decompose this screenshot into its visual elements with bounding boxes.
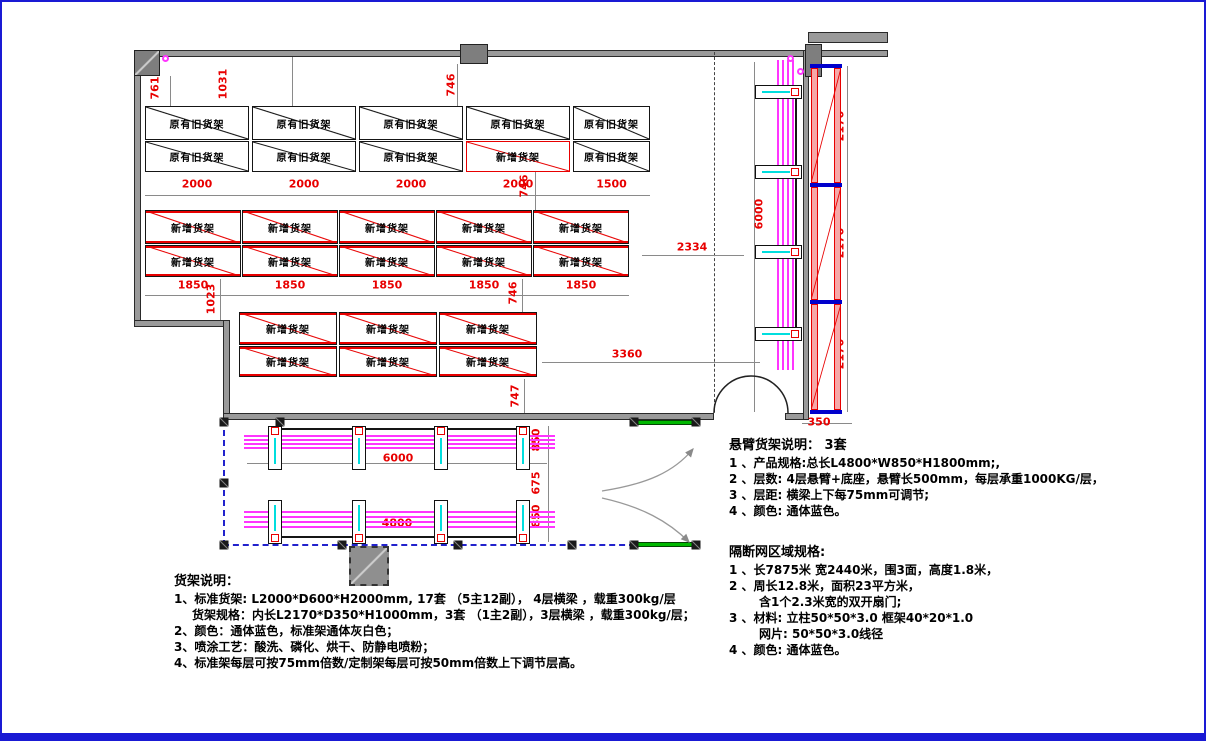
wall-step (134, 320, 230, 327)
dim-line (642, 255, 744, 256)
dim-rack-bay: 1850 (566, 279, 597, 292)
floor-plan-page: 761 1031 746 746 1023 746 747 2334 3360 … (0, 0, 1206, 741)
rack-brace (811, 68, 841, 183)
marker-circle (797, 68, 804, 75)
rack-cell-old: 原有旧货架 (466, 106, 570, 140)
rack-cell-new: 新增货架 (339, 245, 435, 277)
note-line: 2、颜色：通体蓝色，标准架通体灰白色； (174, 623, 695, 639)
fence-post (454, 541, 463, 550)
rack-cell-new: 新增货架 (339, 312, 437, 345)
cantilever-arm-line (244, 443, 555, 445)
rack-cell-old: 原有旧货架 (359, 141, 463, 172)
cantilever-arm-line (787, 60, 789, 370)
cantilever-arm-line (244, 447, 555, 449)
title-bar-bottom (2, 733, 1206, 741)
rack-cell-new: 新增货架 (145, 245, 241, 277)
note-line: 货架规格：内长L2170*D350*H1000mm，3套 （1主2副），3层横梁… (174, 607, 695, 623)
dim-line (524, 379, 525, 413)
dim-rack-bay: 1500 (596, 178, 627, 191)
rack-cell-old: 原有旧货架 (573, 106, 650, 140)
notes-rack-title: 货架说明： (174, 574, 695, 590)
fence-post (630, 541, 639, 550)
dim-rack-bay: 2000 (289, 178, 320, 191)
fence-post (220, 541, 229, 550)
dim-line (754, 62, 755, 412)
notes-cantilever-spec: 悬臂货架说明： 3套 1 、产品规格:总长L4800*W850*H1800mm;… (729, 438, 1104, 519)
note-line: 2 、周长12.8米，面积23平方米， (729, 578, 998, 594)
wall-top-right (808, 32, 888, 43)
note-line: 2 、层数: 4层悬臂+底座，悬臂长500mm，每层承重1000KG/层， (729, 471, 1104, 487)
dim-746-group2: 746 (507, 282, 520, 305)
dim-line (292, 57, 293, 106)
wall-right (803, 50, 809, 420)
notes-cantilever-title: 悬臂货架说明： 3套 (729, 438, 1104, 454)
dim-rack-bay: 2000 (503, 178, 534, 191)
rack-cell-new: 新增货架 (533, 210, 629, 244)
cantilever-column (437, 534, 445, 542)
cantilever-column (355, 534, 363, 542)
note-line: 1 、产品规格:总长L4800*W850*H1800mm;, (729, 455, 1104, 471)
fence-post (276, 418, 285, 427)
cantilever-column (271, 427, 279, 435)
cantilever-column (519, 534, 527, 542)
swing-arrow-down (602, 498, 689, 542)
fence-post (338, 541, 347, 550)
rack-cell-old: 原有旧货架 (359, 106, 463, 140)
fence-post (692, 418, 701, 427)
cantilever-column (791, 248, 799, 256)
dim-1031: 1031 (217, 69, 230, 100)
note-line: 含1个2.3米宽的双开扇门; (729, 594, 998, 610)
cantilever-detail (762, 251, 790, 253)
center-line (714, 52, 715, 412)
cantilever-column (791, 330, 799, 338)
swing-arrow-up (602, 449, 693, 491)
cantilever-arm-line (244, 521, 555, 523)
cantilever-arm-line (782, 60, 784, 370)
rack-cell-new: 新增货架 (436, 210, 532, 244)
rack-cell-new: 新增货架 (436, 245, 532, 277)
note-line: 1、标准货架: L2000*D600*H2000mm, 17套 （5主12副），… (174, 591, 695, 607)
dim-2334: 2334 (677, 241, 708, 254)
fence-post (220, 479, 229, 488)
dim-761: 761 (149, 77, 162, 100)
dim-line (145, 195, 650, 196)
cantilever-arm-line (244, 439, 555, 441)
dim-line (522, 279, 523, 312)
dim-line (535, 172, 536, 210)
rack-cell-old: 原有旧货架 (145, 106, 249, 140)
cantilever-detail (274, 505, 276, 531)
fence-post (568, 541, 577, 550)
rack-cell-new: 新增货架 (239, 312, 337, 345)
fence-post (692, 541, 701, 550)
rack-cell-new: 新增货架 (439, 346, 537, 377)
dim-rack-bay: 1850 (275, 279, 306, 292)
notes-rack-spec: 货架说明： 1、标准货架: L2000*D600*H2000mm, 17套 （5… (174, 574, 695, 671)
cantilever-beam (272, 536, 524, 538)
cantilever-detail (522, 438, 524, 464)
rack-cell-new: 新增货架 (145, 210, 241, 244)
cantilever-column (271, 534, 279, 542)
notes-fence-spec: 隔断网区域规格: 1 、长7875米 宽2440米，围3面，高度1.8米，2 、… (729, 545, 998, 658)
dim-rack-bay: 1850 (469, 279, 500, 292)
dim-3360: 3360 (612, 348, 643, 361)
marker-circle (162, 55, 169, 62)
rack-cell-new: 新增货架 (466, 141, 570, 172)
rack-cell-new: 新增货架 (533, 245, 629, 277)
dim-line (220, 279, 221, 320)
rack-brace (811, 304, 841, 410)
cantilever-arm-line (244, 435, 555, 437)
note-line: 4 、颜色: 通体蓝色。 (729, 642, 998, 658)
rack-cell-new: 新增货架 (339, 210, 435, 244)
cantilever-arm-line (244, 516, 555, 518)
fence-post (220, 418, 229, 427)
dim-350: 350 (808, 416, 831, 429)
mesh-panel-bottom (635, 542, 695, 547)
cantilever-column (791, 88, 799, 96)
column-top-left (134, 50, 160, 76)
cantilever-detail (358, 505, 360, 531)
note-line: 1 、长7875米 宽2440米，围3面，高度1.8米， (729, 562, 998, 578)
rack-cell-old: 原有旧货架 (145, 141, 249, 172)
dim-rack-bay: 2000 (396, 178, 427, 191)
dim-6000-right: 6000 (753, 199, 766, 230)
cantilever-beam (795, 92, 797, 334)
cantilever-detail (522, 505, 524, 531)
dim-rack-bay: 2000 (182, 178, 213, 191)
rack-cell-new: 新增货架 (439, 312, 537, 345)
dim-rack-bay: 1850 (372, 279, 403, 292)
cantilever-detail (762, 333, 790, 335)
rack-cell-new: 新增货架 (239, 346, 337, 377)
rack-cell-old: 原有旧货架 (252, 141, 356, 172)
cantilever-arm-line (244, 511, 555, 513)
door-arc-right (751, 376, 788, 413)
dim-746-top: 746 (445, 74, 458, 97)
cantilever-arm-line (244, 526, 555, 528)
rack-cell-new: 新增货架 (339, 346, 437, 377)
cantilever-detail (762, 91, 790, 93)
wall-left-upper (134, 50, 141, 327)
cantilever-arm-line (777, 60, 779, 370)
note-line: 3 、材料: 立柱50*50*3.0 框架40*20*1.0 (729, 610, 998, 626)
dim-6000-bottom: 6000 (383, 452, 414, 465)
note-line: 4、标准架每层可按75mm倍数/定制架每层可按50mm倍数上下调节层高。 (174, 655, 695, 671)
note-line: 3 、层距: 横梁上下每75mm可调节; (729, 487, 1104, 503)
rack-cap (810, 410, 842, 414)
cantilever-column (791, 168, 799, 176)
cantilever-column (437, 427, 445, 435)
cantilever-column (519, 427, 527, 435)
dim-line (170, 76, 171, 106)
cantilever-detail (274, 438, 276, 464)
note-line: 3、喷涂工艺：酸洗、磷化、烘干、防静电喷粉； (174, 639, 695, 655)
dim-747: 747 (509, 385, 522, 408)
column-top-middle (460, 44, 488, 64)
wall-bottom-left (223, 413, 714, 420)
cantilever-arm-line (792, 60, 794, 370)
dim-rack-bay: 1850 (178, 279, 209, 292)
mesh-panel-top (635, 420, 695, 425)
rack-cell-new: 新增货架 (242, 245, 338, 277)
door-arc-left (714, 376, 751, 413)
cantilever-detail (440, 505, 442, 531)
dim-line (847, 66, 848, 412)
wall-left-lower (223, 320, 230, 420)
cantilever-detail (440, 438, 442, 464)
rack-cell-new: 新增货架 (242, 210, 338, 244)
cantilever-detail (762, 171, 790, 173)
fence-post (630, 418, 639, 427)
note-line: 4 、颜色: 通体蓝色。 (729, 503, 1104, 519)
cantilever-beam (272, 428, 524, 430)
dim-line (145, 295, 629, 296)
cantilever-detail (358, 438, 360, 464)
dim-line (542, 362, 760, 363)
notes-fence-title: 隔断网区域规格: (729, 545, 998, 561)
rack-cell-old: 原有旧货架 (573, 141, 650, 172)
rack-brace (811, 187, 841, 300)
dim-675: 675 (530, 472, 543, 495)
rack-cell-old: 原有旧货架 (252, 106, 356, 140)
cantilever-column (355, 427, 363, 435)
note-line: 网片: 50*50*3.0线径 (729, 626, 998, 642)
wall-top (134, 50, 888, 57)
